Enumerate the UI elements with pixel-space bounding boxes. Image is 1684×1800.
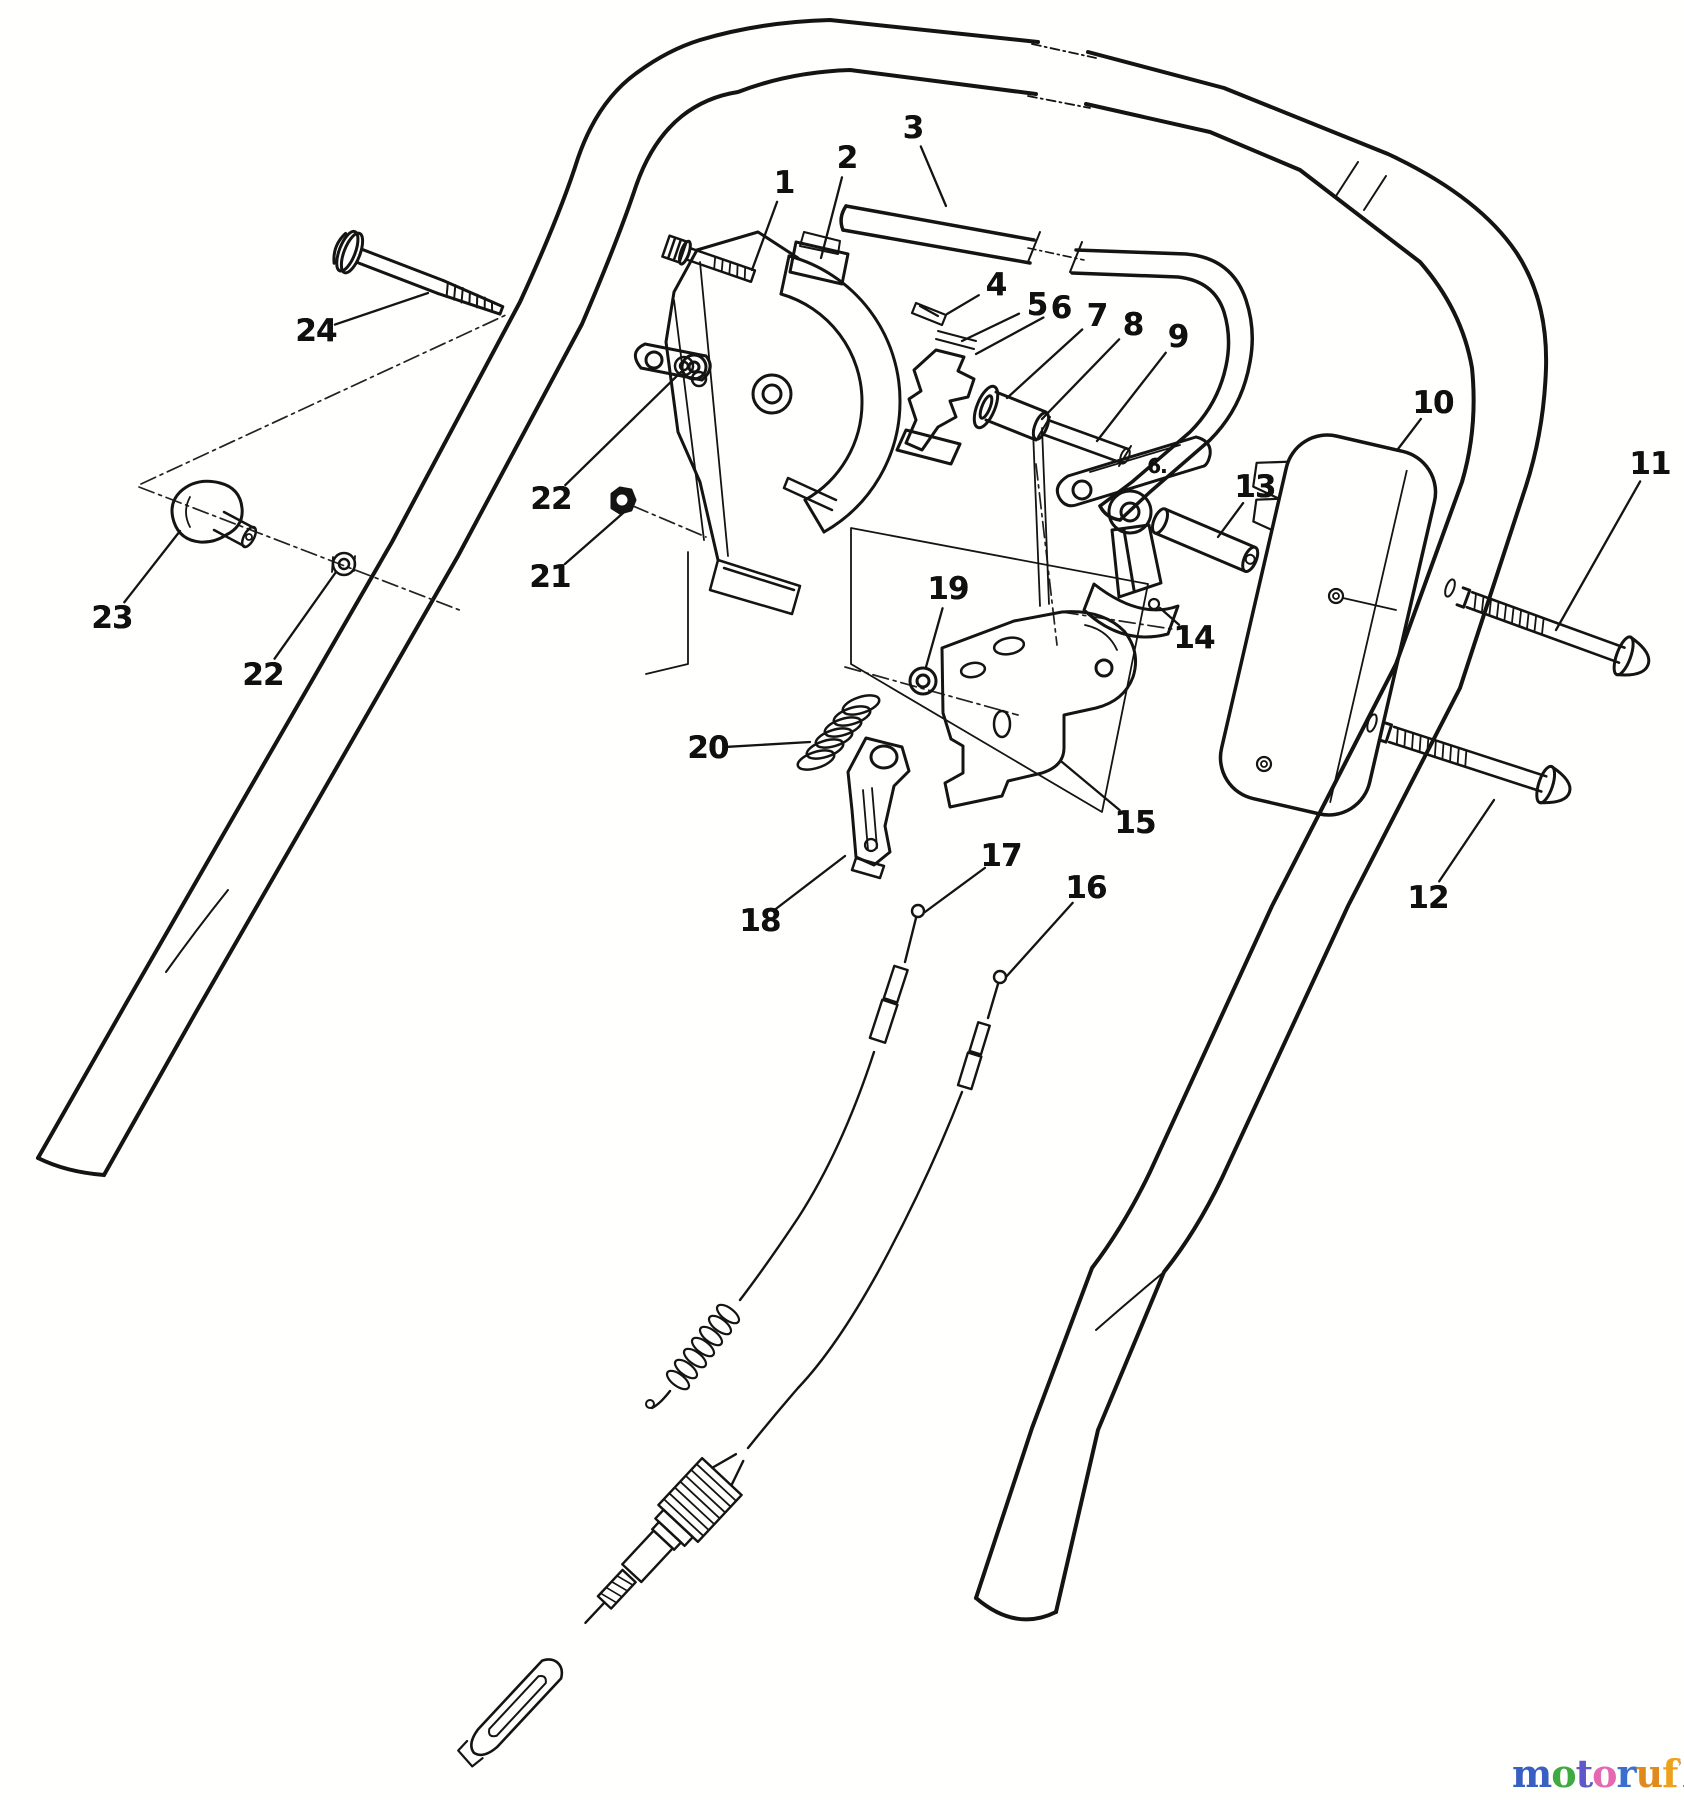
part-callout-6: 6 — [1051, 290, 1072, 326]
machine-screw-11 — [1453, 578, 1655, 684]
part-callout-13: 13 — [1234, 469, 1275, 505]
part-callout-17: 17 — [980, 838, 1021, 874]
part-callout-4: 4 — [986, 267, 1007, 303]
part-callout-15: 15 — [1114, 805, 1155, 841]
leader-line-12 — [1439, 800, 1494, 881]
part-callout-1: 1 — [774, 165, 795, 201]
leader-line-23 — [124, 531, 180, 602]
leader-line-1 — [752, 202, 777, 270]
pivot-washers-22 — [675, 357, 706, 386]
carriage-screw-24 — [329, 227, 509, 330]
part-callout-11: 11 — [1629, 446, 1670, 482]
part-callout-2: 2 — [837, 140, 858, 176]
watermark-letter: o — [1551, 1751, 1575, 1796]
leader-line-9 — [1097, 353, 1166, 441]
parts-diagram-page: 1234567891011121314151617181920212222232… — [0, 0, 1684, 1800]
ring-washer-19 — [910, 668, 936, 694]
leader-line-21 — [565, 507, 630, 564]
leader-line-13 — [1218, 503, 1243, 537]
part-callout-21: 21 — [529, 559, 570, 595]
part-callout-22a: 22 — [530, 481, 571, 517]
leader-line-11 — [1556, 481, 1640, 630]
part-callout-7: 7 — [1087, 298, 1108, 334]
clevis-pin-13 — [1149, 507, 1260, 574]
watermark-letter: o — [1592, 1751, 1616, 1796]
phantom-axis-lines — [139, 314, 1172, 715]
leader-line-20 — [728, 742, 810, 747]
part-callout-24: 24 — [295, 313, 336, 349]
control-housing — [635, 232, 900, 614]
part-callout-22b: 22 — [242, 657, 283, 693]
throttle-cable-16 — [457, 971, 1006, 1770]
leader-line-4 — [947, 295, 979, 314]
control-knob-23 — [172, 481, 259, 549]
leader-line-18 — [776, 856, 845, 909]
leader-line-24 — [335, 293, 428, 325]
leader-line-17 — [925, 868, 985, 912]
leader-line-10 — [1398, 419, 1421, 449]
leader-line-3 — [921, 146, 946, 206]
part-callout-5: 5 — [1027, 287, 1048, 323]
cam-lever-18 — [848, 738, 909, 878]
watermark-letter: m — [1512, 1751, 1551, 1796]
watermark-letter: u — [1636, 1751, 1663, 1796]
part-callout-12: 12 — [1407, 880, 1448, 916]
part-callout-14: 14 — [1173, 620, 1214, 656]
screw-11-washer — [1443, 578, 1457, 598]
leader-line-8 — [1042, 339, 1119, 419]
part-callout-23: 23 — [91, 600, 132, 636]
part-callout-18: 18 — [739, 903, 780, 939]
leader-line-22a — [565, 372, 681, 485]
part-callout-9: 9 — [1168, 319, 1189, 355]
part-callout-20: 20 — [687, 730, 728, 766]
part-callout-10: 10 — [1412, 385, 1453, 421]
control-bracket-15 — [942, 612, 1136, 807]
compression-spring-20 — [795, 692, 881, 774]
part-callout-8: 8 — [1123, 307, 1144, 343]
leader-line-22b — [275, 572, 336, 659]
watermark-logo: motoruf’.de — [1512, 1746, 1684, 1800]
part-callout-19: 19 — [927, 571, 968, 607]
watermark-letter: r — [1617, 1751, 1636, 1796]
part-callout-6b: 6. — [1147, 454, 1167, 478]
locknut-21 — [612, 488, 635, 513]
cover-plate-10 — [1183, 420, 1444, 823]
watermark-letter: f — [1662, 1751, 1677, 1796]
hex-bolt-1 — [662, 235, 757, 288]
leader-line-5 — [962, 314, 1019, 341]
leader-line-19 — [926, 608, 943, 667]
watermark-letter: t — [1576, 1751, 1593, 1796]
part-callout-16: 16 — [1065, 870, 1106, 906]
control-cable-17 — [646, 905, 924, 1408]
part-callout-3: 3 — [903, 110, 924, 146]
leader-line-16 — [1006, 903, 1073, 977]
